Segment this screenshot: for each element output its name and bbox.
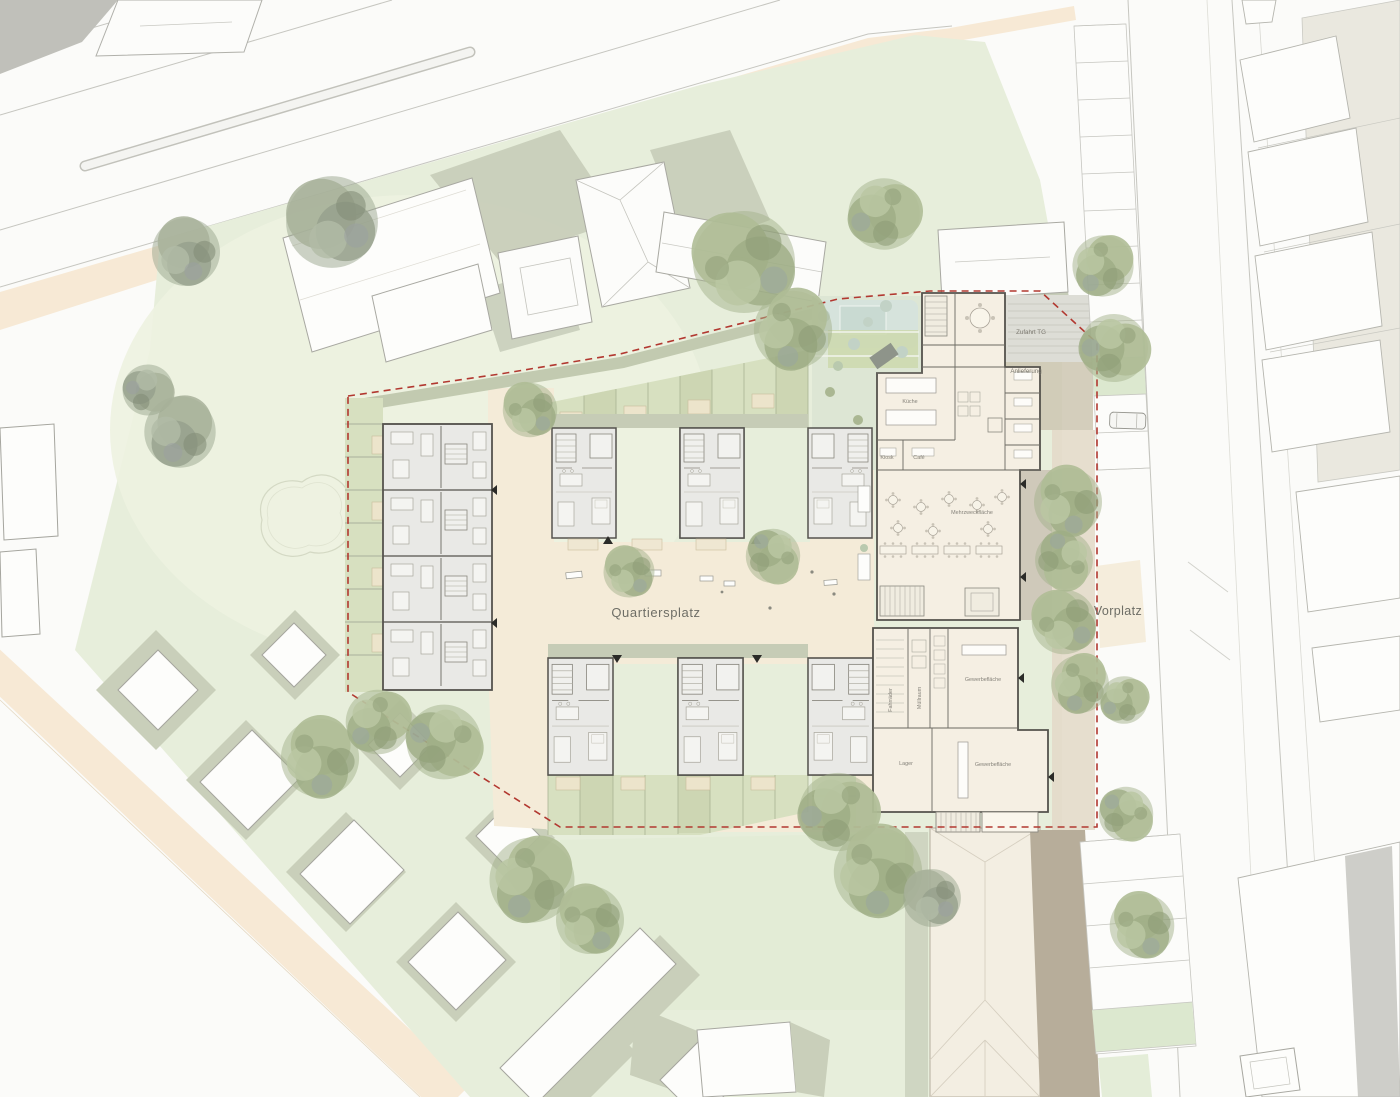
pond — [261, 475, 352, 557]
parked-car — [1109, 412, 1146, 429]
label-kueche: Küche — [902, 399, 917, 405]
residential-building-west — [383, 424, 497, 690]
label-kiosk: Kiosk — [880, 455, 893, 461]
label-gewerbeflaeche-sued: Gewerbefläche — [975, 762, 1011, 768]
label-vorplatz: Vorplatz — [1094, 604, 1142, 618]
site-plan: Quartiersplatz Vorplatz Zufahrt TG Anlie… — [0, 0, 1400, 1097]
label-mehrzweckflaeche: Mehrzweckfläche — [951, 510, 993, 516]
label-fahrraeder: Fahrräder — [888, 688, 894, 712]
label-cafe: Café — [913, 455, 924, 461]
label-anlieferung: Anlieferung — [1010, 368, 1042, 375]
residential-building-south — [548, 644, 873, 775]
label-quartiersplatz: Quartiersplatz — [611, 605, 700, 620]
label-lager: Lager — [899, 761, 913, 767]
residential-building-north — [552, 414, 872, 550]
site-plan-drawing: Quartiersplatz Vorplatz Zufahrt TG Anlie… — [0, 0, 1400, 1097]
label-gewerbeflaeche-nord: Gewerbefläche — [965, 677, 1001, 683]
label-zufahrt-tg: Zufahrt TG — [1016, 329, 1046, 336]
label-muellraum: Müllraum — [917, 686, 923, 709]
